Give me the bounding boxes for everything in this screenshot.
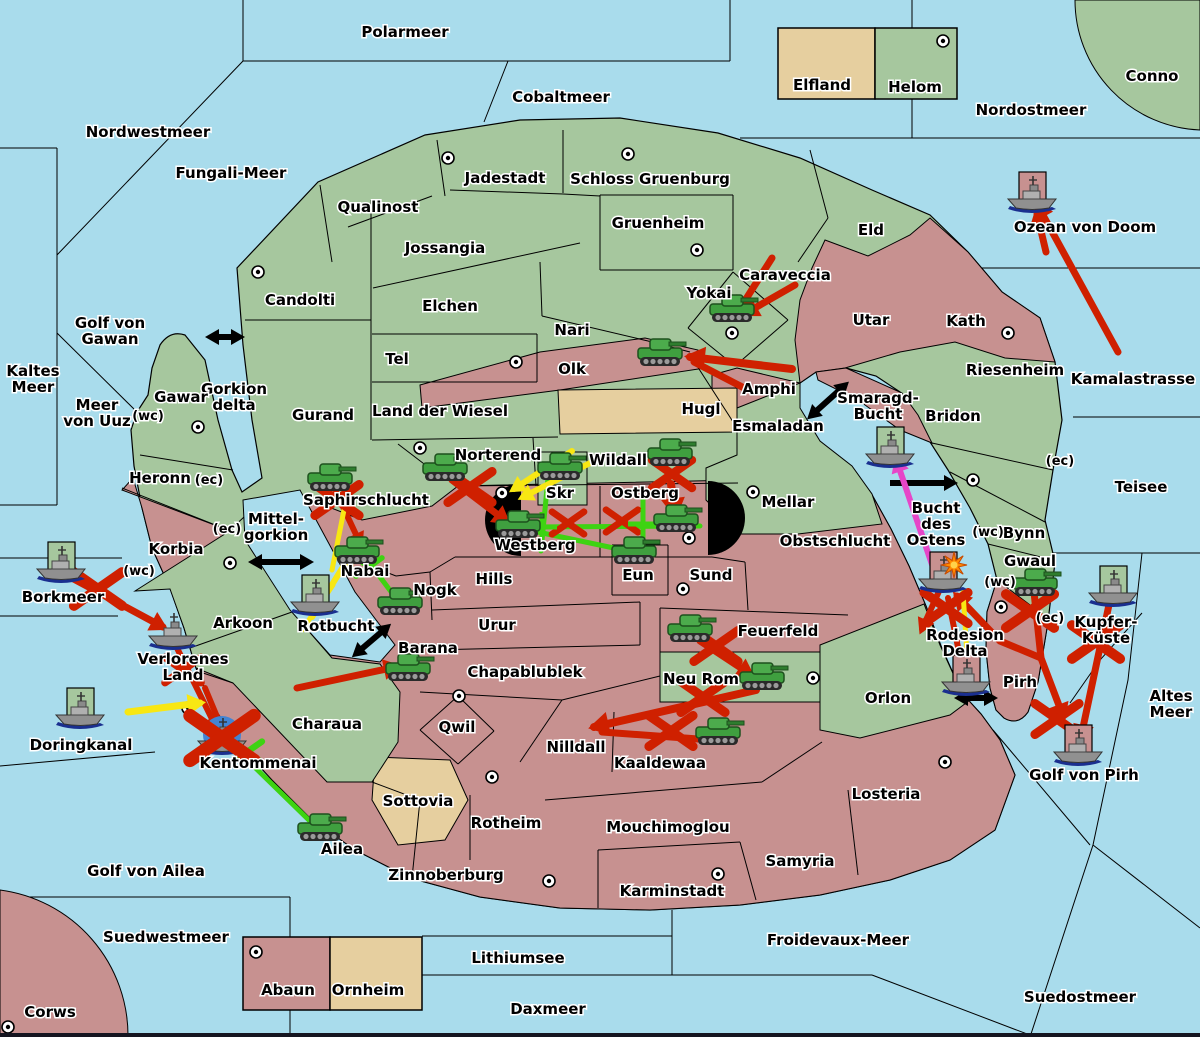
supply-center-dot: [453, 690, 465, 702]
region-label: Qualinost: [338, 198, 419, 216]
region-label: Nordwestmeer: [86, 123, 211, 141]
region-label: Abaun: [261, 981, 315, 999]
region-label: Eld: [858, 221, 884, 239]
region-label: Caraveccia: [739, 266, 831, 284]
coast-tag-label: (wc): [123, 564, 155, 579]
region-label: Polarmeer: [361, 23, 449, 41]
coast-tag-label: (wc): [132, 409, 164, 424]
supply-center-dot: [442, 152, 454, 164]
coast-tag-label: (ec): [1036, 611, 1064, 626]
region-label: Gawar: [154, 388, 208, 406]
region-label: Kentommenai: [199, 754, 316, 772]
coast-tag-label: (ec): [213, 522, 241, 537]
region-label: Olk: [558, 360, 587, 378]
region-label: Hills: [476, 570, 513, 588]
region-label: Nabai: [341, 562, 390, 580]
region-label: Kaaldewaa: [614, 754, 706, 772]
supply-center-dot: [1002, 327, 1014, 339]
region-label: Teisee: [1115, 478, 1168, 496]
region-label: Kamalastrasse: [1071, 370, 1195, 388]
region-label: Schloss Gruenburg: [570, 170, 730, 188]
region-label: Yokai: [685, 284, 731, 302]
region-label: Chapablublek: [467, 663, 583, 681]
supply-center-dot: [543, 875, 555, 887]
supply-center-dot: [939, 756, 951, 768]
region-label: Samyria: [766, 852, 835, 870]
region-label: Nilldall: [546, 738, 605, 756]
region-label: Sund: [690, 566, 733, 584]
region-label: Ornheim: [332, 981, 404, 999]
region-label: Skr: [546, 484, 575, 502]
supply-center-dot: [683, 532, 695, 544]
supply-center-dot: [496, 487, 508, 499]
region-label: Mittel-gorkion: [244, 510, 309, 544]
region-label: Orlon: [865, 689, 911, 707]
region-label: Borkmeer: [22, 588, 105, 606]
coast-tag-label: (wc): [972, 525, 1004, 540]
region-label: Suedwestmeer: [103, 928, 229, 946]
region-label: Charaua: [292, 715, 362, 733]
region-label: Amphi: [742, 380, 796, 398]
supply-center-dot: [2, 1021, 14, 1033]
supply-center-dot: [995, 601, 1007, 613]
region-label: Rotbucht: [297, 617, 374, 635]
region-label: Nogk: [413, 581, 458, 599]
region-label: Barana: [398, 639, 458, 657]
region-label: Golf vonGawan: [75, 314, 145, 348]
region-label: Kath: [946, 312, 986, 330]
region-label: Suedostmeer: [1024, 988, 1137, 1006]
region-label: Saphirschlucht: [303, 491, 429, 509]
supply-center-dot: [937, 35, 949, 47]
supply-center-dot: [414, 442, 426, 454]
region-label: Ozean von Doom: [1014, 218, 1156, 236]
explosion-star-icon: [941, 552, 967, 578]
region-label: Ailea: [321, 840, 363, 858]
region-label: Zinnoberburg: [388, 866, 504, 884]
region-label: Eun: [622, 566, 654, 584]
region-label: Helom: [888, 78, 942, 96]
region-label: Bridon: [925, 407, 981, 425]
region-label: Sottovia: [383, 792, 454, 810]
region-label: Wildall: [589, 451, 647, 469]
region-label: Bynn: [1003, 524, 1046, 542]
region-label: Neu Rom: [663, 670, 739, 688]
region-label: Obstschlucht: [780, 532, 891, 550]
region-label: Corws: [24, 1003, 76, 1021]
region-label: Karminstadt: [620, 882, 725, 900]
supply-center-dot: [250, 946, 262, 958]
region-label: Ostberg: [611, 484, 679, 502]
region-label: Heronn: [129, 469, 191, 487]
supply-center-dot: [747, 486, 759, 498]
region-label: Elfland: [793, 76, 851, 94]
region-label: Korbia: [148, 540, 203, 558]
region-label: Esmaladan: [732, 417, 824, 435]
region-label: Lithiumsee: [471, 949, 564, 967]
region-label: Kupfer-Küste: [1074, 613, 1137, 647]
coast-tag-label: (wc): [984, 575, 1016, 590]
screen-edge: [0, 1033, 1200, 1037]
region-label: Westberg: [494, 536, 575, 554]
supply-center-dot: [252, 266, 264, 278]
coast-tag-label: (ec): [195, 473, 223, 488]
supply-center-dot: [677, 583, 689, 595]
legend-box-ornheim: [330, 937, 422, 1010]
region-label: AltesMeer: [1149, 687, 1192, 721]
game-map-canvas[interactable]: Game drawn PolarmeerNordwestmeerFungali-…: [0, 0, 1200, 1037]
region-label: KaltesMeer: [6, 362, 59, 396]
region-label: Cobaltmeer: [512, 88, 610, 106]
supply-center-dot: [510, 356, 522, 368]
supply-center-dot: [486, 771, 498, 783]
region-label: Riesenheim: [966, 361, 1064, 379]
region-label: Norterend: [455, 446, 542, 464]
region-label: Utar: [853, 311, 890, 329]
region-label: Qwil: [439, 718, 476, 736]
supply-center-dot: [726, 327, 738, 339]
region-label: Nari: [554, 321, 589, 339]
supply-center-dot: [622, 148, 634, 160]
region-label: Gurand: [292, 406, 354, 424]
supply-center-dot: [691, 244, 703, 256]
region-label: Mellar: [762, 493, 816, 511]
region-label: Elchen: [422, 297, 478, 315]
region-label: Golf von Pirh: [1029, 766, 1139, 784]
region-label: Fungali-Meer: [176, 164, 287, 182]
region-label: Jossangia: [404, 239, 486, 257]
region-label: Golf von Ailea: [87, 862, 205, 880]
coast-tag-label: (ec): [1046, 454, 1074, 469]
region-label: Urur: [478, 616, 516, 634]
region-label: Land der Wiesel: [372, 402, 508, 420]
region-label: Pirh: [1003, 673, 1037, 691]
supply-center-dot: [192, 421, 204, 433]
supply-center-dot: [967, 474, 979, 486]
supply-center-dot: [712, 868, 724, 880]
region-label: Rotheim: [471, 814, 542, 832]
supply-center-dot: [224, 557, 236, 569]
region-label: Losteria: [852, 785, 921, 803]
region-label: Candolti: [265, 291, 335, 309]
region-label: Gruenheim: [612, 214, 705, 232]
region-label: Arkoon: [213, 614, 273, 632]
region-label: Hugl: [681, 400, 720, 418]
region-label: Gwaul: [1004, 552, 1056, 570]
region-label: Jadestadt: [464, 169, 546, 187]
region-label: Doringkanal: [30, 736, 133, 754]
supply-center-dot: [807, 672, 819, 684]
region-label: Nordostmeer: [976, 101, 1087, 119]
region-label: Mouchimoglou: [606, 818, 729, 836]
region-label: Froidevaux-Meer: [767, 931, 910, 949]
region-label: Conno: [1126, 67, 1179, 85]
region-label: Feuerfeld: [738, 622, 819, 640]
region-label: Tel: [385, 350, 409, 368]
region-label: Daxmeer: [510, 1000, 586, 1018]
